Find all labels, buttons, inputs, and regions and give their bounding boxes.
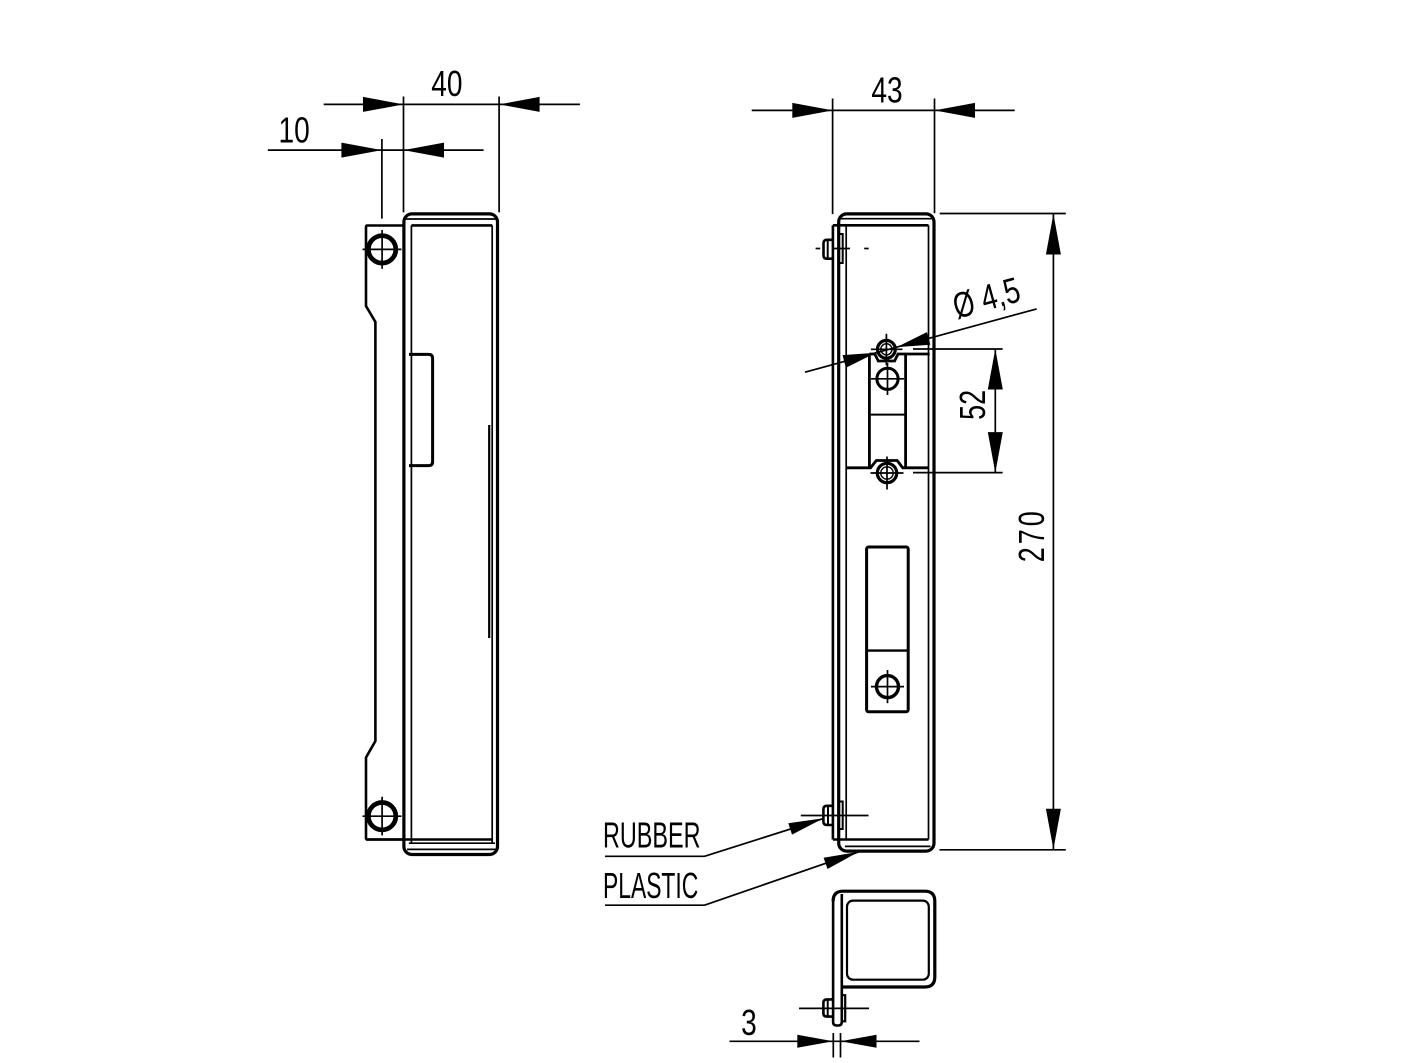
svg-text:43: 43 [871,70,902,110]
svg-text:52: 52 [952,390,993,420]
svg-text:270: 270 [1011,508,1052,562]
svg-text:10: 10 [278,110,309,150]
svg-text:PLASTIC: PLASTIC [603,867,698,906]
svg-text:RUBBER: RUBBER [603,817,701,856]
svg-text:40: 40 [431,64,462,104]
svg-text:3: 3 [741,1003,757,1043]
